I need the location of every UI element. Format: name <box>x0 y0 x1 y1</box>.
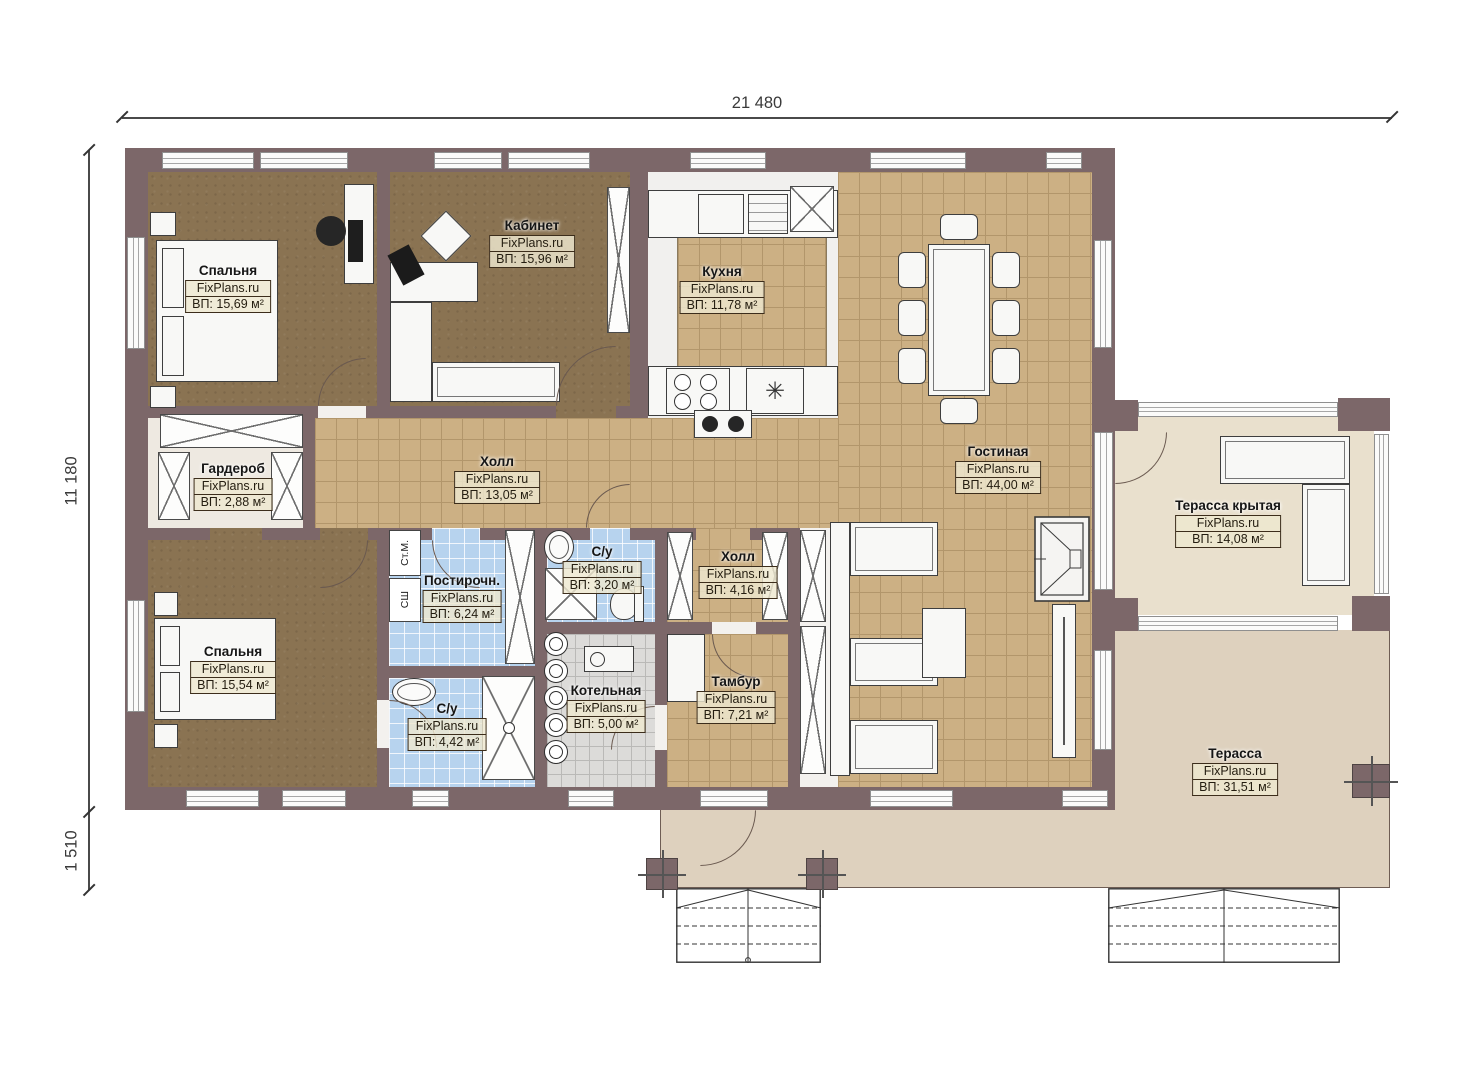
window <box>162 152 254 169</box>
room-area: ВП: 6,24 м² <box>423 607 502 623</box>
pillow <box>160 672 180 712</box>
window <box>870 790 953 807</box>
window <box>870 152 966 169</box>
wall-bedroom2-laundry <box>377 748 389 787</box>
watermark: FixPlans.ru <box>190 661 276 678</box>
laundry-cabinet <box>505 530 535 664</box>
room-label-vestibule: Тамбур FixPlans.ru ВП: 7,21 м² <box>697 674 776 724</box>
window <box>568 790 614 807</box>
wardrobe-cabinet <box>158 452 190 520</box>
kitchen-sink <box>698 194 744 234</box>
room-name: Постирочн. <box>423 573 502 588</box>
nightstand <box>154 724 178 748</box>
watermark: FixPlans.ru <box>697 691 776 708</box>
watermark: FixPlans.ru <box>194 478 273 495</box>
room-area: ВП: 31,51 м² <box>1192 780 1278 796</box>
room-label-bath-1: С/у FixPlans.ru ВП: 3,20 м² <box>563 544 642 594</box>
room-name: Спальня <box>190 644 276 659</box>
boiler <box>584 646 634 672</box>
dining-table <box>928 244 990 396</box>
watermark: FixPlans.ru <box>489 235 575 252</box>
watermark: FixPlans.ru <box>185 280 271 297</box>
window <box>434 152 502 169</box>
covered-terrace-glazing <box>1374 434 1389 594</box>
window <box>1094 240 1112 348</box>
room-area: ВП: 15,54 м² <box>190 678 276 694</box>
dining-chair <box>992 348 1020 384</box>
room-area: ВП: 3,20 м² <box>563 578 642 594</box>
dining-chair <box>940 398 978 424</box>
window <box>186 790 259 807</box>
dryer: СШ <box>389 578 421 622</box>
room-name: Холл <box>454 454 540 469</box>
hall-cabinet <box>800 626 826 774</box>
dimension-line-left-porch <box>88 812 90 890</box>
room-name: Кухня <box>680 264 765 279</box>
washer-label: Ст.М. <box>399 540 411 566</box>
dimension-height-porch: 1 510 <box>63 830 82 871</box>
hall2-cabinet <box>667 532 693 620</box>
watermark: FixPlans.ru <box>680 281 765 298</box>
covered-terrace-post <box>1352 596 1390 631</box>
room-label-bedroom-2: Спальня FixPlans.ru ВП: 15,54 м² <box>190 644 276 694</box>
wall-boiler-vestibule <box>655 750 667 787</box>
room-area: ВП: 15,69 м² <box>185 297 271 313</box>
dryer-label: СШ <box>399 591 411 608</box>
watermark: FixPlans.ru <box>699 566 778 583</box>
wardrobe-cabinet <box>271 452 303 520</box>
watermark: FixPlans.ru <box>1175 515 1281 532</box>
sofa-section <box>850 720 938 774</box>
room-label-hall: Холл FixPlans.ru ВП: 13,05 м² <box>454 454 540 504</box>
room-name: Терасса крытая <box>1175 498 1281 513</box>
window <box>127 237 145 349</box>
window <box>1062 790 1108 807</box>
coffee-table <box>922 608 966 678</box>
boiler-unit <box>544 632 568 656</box>
monitor <box>348 220 363 262</box>
room-label-kitchen: Кухня FixPlans.ru ВП: 11,78 м² <box>680 264 765 314</box>
room-area: ВП: 11,78 м² <box>680 298 765 314</box>
room-area: ВП: 2,88 м² <box>194 495 273 511</box>
window <box>260 152 348 169</box>
room-name: С/у <box>563 544 642 559</box>
room-hall-floor <box>315 418 838 528</box>
wall-wardrobe-right <box>303 418 315 528</box>
terrace-sofa <box>1220 436 1350 484</box>
bar-stool <box>728 416 744 432</box>
room-label-office: Кабинет FixPlans.ru ВП: 15,96 м² <box>489 218 575 268</box>
watermark: FixPlans.ru <box>408 718 487 735</box>
bar-stool <box>702 416 718 432</box>
dining-chair <box>898 348 926 384</box>
covered-terrace-glazing <box>1138 616 1338 631</box>
room-area: ВП: 4,16 м² <box>699 583 778 599</box>
room-name: С/у <box>408 701 487 716</box>
window <box>508 152 590 169</box>
pillow <box>162 248 184 308</box>
watermark: FixPlans.ru <box>955 461 1041 478</box>
room-area: ВП: 44,00 м² <box>955 478 1041 494</box>
room-label-laundry: Постирочн. FixPlans.ru ВП: 6,24 м² <box>423 573 502 623</box>
entrance-steps <box>676 888 821 963</box>
dining-chair <box>898 252 926 288</box>
window <box>1094 650 1112 750</box>
office-wardrobe <box>607 187 630 333</box>
kitchen-drawers <box>748 194 788 234</box>
room-area: ВП: 5,00 м² <box>567 717 646 733</box>
dimension-width-total: 21 480 <box>732 94 782 113</box>
room-name: Котельная <box>567 683 646 698</box>
room-name: Гостиная <box>955 444 1041 459</box>
porch-column <box>806 858 838 890</box>
room-name: Спальня <box>185 263 271 278</box>
wall-bedroom1-office <box>377 172 390 418</box>
terrace-sofa <box>1302 484 1350 586</box>
tv-stand <box>1052 604 1076 758</box>
window <box>282 790 346 807</box>
window <box>690 152 766 169</box>
boiler-unit <box>544 740 568 764</box>
watermark: FixPlans.ru <box>423 590 502 607</box>
watermark: FixPlans.ru <box>454 471 540 488</box>
stove <box>666 368 730 414</box>
room-area: ВП: 15,96 м² <box>489 252 575 268</box>
terrace-door-opening <box>1094 432 1113 590</box>
fireplace <box>1034 516 1090 602</box>
floor-plan: ✳ Ст.М. СШ <box>0 0 1473 1080</box>
sofa-section <box>850 522 938 576</box>
dining-chair <box>992 300 1020 336</box>
covered-terrace-wall <box>1115 598 1138 631</box>
freezer-glyph: ✳ <box>765 377 785 406</box>
dimension-line-left-main <box>88 150 90 812</box>
wall-vestibule-living <box>788 528 800 787</box>
wall-hall2-vestibule <box>756 622 788 634</box>
desk-chair <box>316 216 346 246</box>
wall-hall-bottom <box>262 528 320 540</box>
wall-hall-bottom <box>148 528 210 540</box>
room-label-boiler: Котельная FixPlans.ru ВП: 5,00 м² <box>567 683 646 733</box>
covered-terrace-post <box>1338 398 1390 431</box>
nightstand <box>150 386 176 408</box>
nightstand <box>150 212 176 236</box>
room-area: ВП: 4,42 м² <box>408 735 487 751</box>
terrace-porch-strip <box>660 810 1390 888</box>
room-area: ВП: 13,05 м² <box>454 488 540 504</box>
room-label-wardrobe: Гардероб FixPlans.ru ВП: 2,88 м² <box>194 461 273 511</box>
wall-kitchen-left <box>630 172 648 418</box>
porch-column <box>646 858 678 890</box>
room-area: ВП: 7,21 м² <box>697 708 776 724</box>
room-label-covered-terrace: Терасса крытая FixPlans.ru ВП: 14,08 м² <box>1175 498 1281 548</box>
boiler-unit <box>544 713 568 737</box>
room-label-bath-2: С/у FixPlans.ru ВП: 4,42 м² <box>408 701 487 751</box>
freezer-symbol: ✳ <box>746 368 804 414</box>
wall-bedroom2-laundry <box>377 528 389 700</box>
room-name: Кабинет <box>489 218 575 233</box>
wall-hall-top <box>366 406 556 418</box>
washing-machine: Ст.М. <box>389 530 421 576</box>
shower-drain <box>503 722 515 734</box>
terrace-column <box>1352 764 1390 798</box>
dining-chair <box>898 300 926 336</box>
watermark: FixPlans.ru <box>563 561 642 578</box>
wall-hall2-vestibule <box>667 622 712 634</box>
office-desk <box>390 302 432 402</box>
sofa-back <box>830 522 850 776</box>
dining-chair <box>940 214 978 240</box>
dimension-line-top <box>122 117 1392 119</box>
room-label-hall-2: Холл FixPlans.ru ВП: 4,16 м² <box>699 549 778 599</box>
terrace-steps <box>1108 888 1340 963</box>
office-sofa <box>432 362 560 402</box>
room-name: Холл <box>699 549 778 564</box>
window <box>412 790 449 807</box>
boiler-unit <box>544 686 568 710</box>
covered-terrace-wall <box>1115 400 1138 431</box>
window <box>127 600 145 712</box>
room-name: Терасса <box>1192 746 1278 761</box>
window <box>1046 152 1082 169</box>
hall-cabinet <box>800 530 826 622</box>
wall-boiler-vestibule <box>655 528 667 705</box>
boiler-unit <box>544 659 568 683</box>
room-label-bedroom-1: Спальня FixPlans.ru ВП: 15,69 м² <box>185 263 271 313</box>
entrance-door-opening <box>700 790 768 807</box>
closet <box>160 414 303 448</box>
pillow <box>162 316 184 376</box>
room-label-terrace: Терасса FixPlans.ru ВП: 31,51 м² <box>1192 746 1278 796</box>
fridge <box>790 186 834 232</box>
pillow <box>160 626 180 666</box>
room-area: ВП: 14,08 м² <box>1175 532 1281 548</box>
watermark: FixPlans.ru <box>1192 763 1278 780</box>
dimension-height-main: 11 180 <box>63 456 82 505</box>
watermark: FixPlans.ru <box>567 700 646 717</box>
room-name: Тамбур <box>697 674 776 689</box>
room-label-living: Гостиная FixPlans.ru ВП: 44,00 м² <box>955 444 1041 494</box>
wall-exterior-bottom <box>125 787 1115 810</box>
dining-chair <box>992 252 1020 288</box>
nightstand <box>154 592 178 616</box>
room-name: Гардероб <box>194 461 273 476</box>
covered-terrace-glazing <box>1138 402 1338 417</box>
